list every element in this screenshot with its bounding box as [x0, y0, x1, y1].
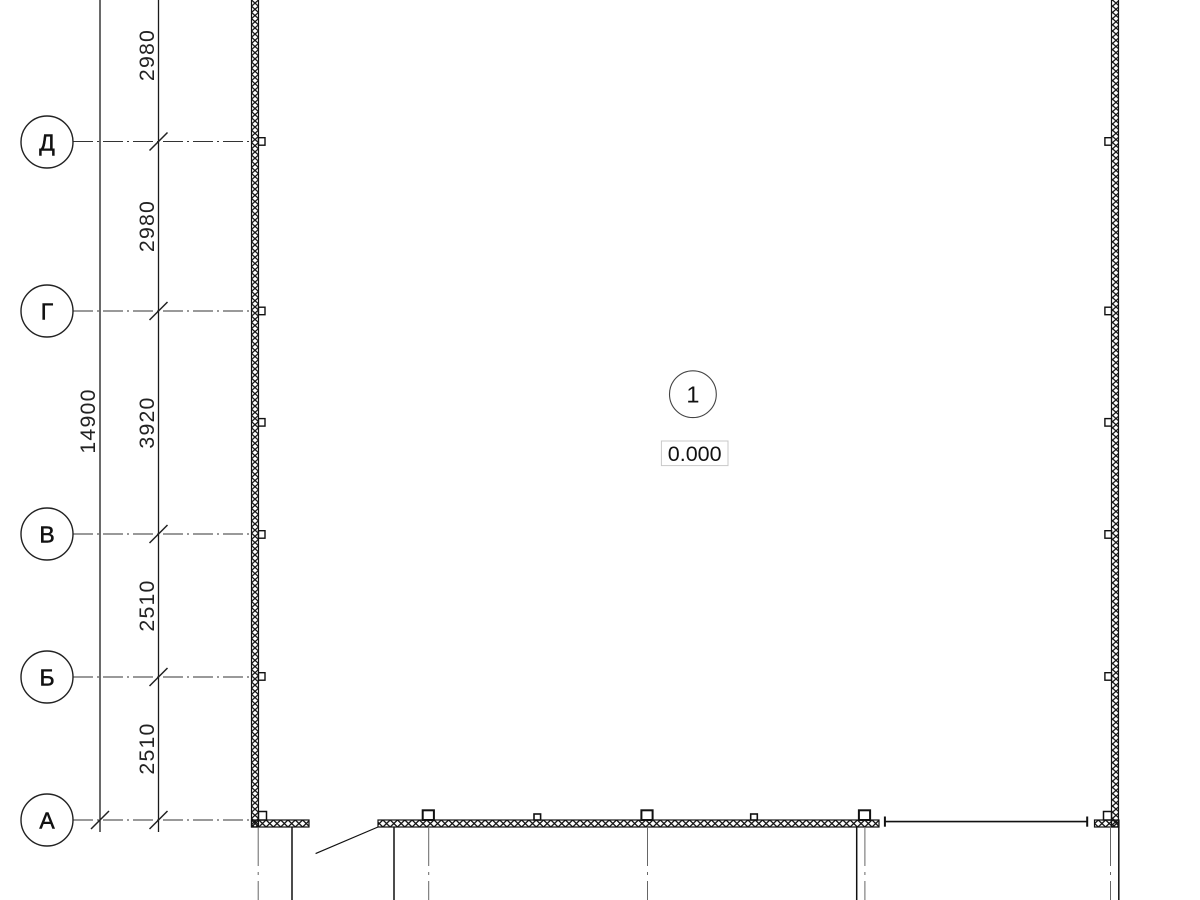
- svg-text:Д: Д: [39, 130, 55, 156]
- svg-text:В: В: [39, 522, 54, 548]
- svg-text:0.000: 0.000: [668, 442, 722, 466]
- svg-text:14900: 14900: [76, 388, 100, 453]
- svg-text:3920: 3920: [135, 396, 159, 448]
- svg-text:Г: Г: [41, 299, 54, 325]
- svg-text:2510: 2510: [135, 579, 159, 631]
- svg-text:А: А: [39, 808, 55, 834]
- svg-text:2510: 2510: [135, 722, 159, 774]
- svg-text:1: 1: [686, 382, 699, 408]
- svg-text:2980: 2980: [135, 200, 159, 252]
- svg-text:Б: Б: [39, 665, 54, 691]
- svg-text:2980: 2980: [135, 29, 159, 81]
